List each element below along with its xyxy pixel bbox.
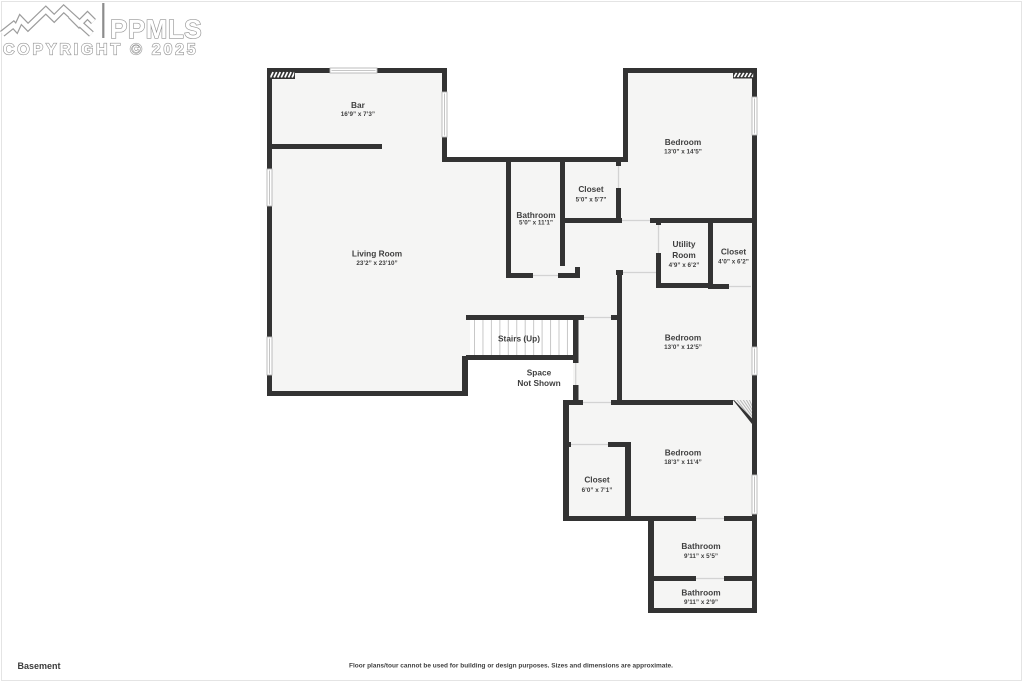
svg-text:6’0” x 7’1”: 6’0” x 7’1” [582, 487, 613, 494]
svg-text:Space: Space [527, 367, 552, 377]
svg-text:4’9” x 6’2”: 4’9” x 6’2” [669, 262, 700, 269]
svg-text:PPMLS: PPMLS [110, 14, 202, 44]
svg-text:Bathroom: Bathroom [681, 587, 720, 597]
svg-text:Closet: Closet [578, 184, 604, 194]
svg-text:Bedroom: Bedroom [665, 447, 701, 457]
svg-text:16’9” x 7’3”: 16’9” x 7’3” [341, 111, 375, 118]
svg-text:13’0” x 12’5”: 13’0” x 12’5” [664, 344, 702, 351]
svg-text:Closet: Closet [721, 246, 747, 256]
svg-text:Living Room: Living Room [352, 248, 402, 258]
svg-text:4’0” x 6’2”: 4’0” x 6’2” [718, 258, 749, 265]
svg-text:Bar: Bar [351, 100, 366, 110]
svg-text:Utility: Utility [672, 239, 695, 249]
svg-text:5’0” x 11’1”: 5’0” x 11’1” [519, 220, 553, 227]
svg-text:23’2” x 23’10”: 23’2” x 23’10” [356, 260, 397, 267]
svg-text:Not Shown: Not Shown [517, 378, 560, 388]
svg-text:9’11” x 5’5”: 9’11” x 5’5” [684, 553, 718, 560]
svg-text:Basement: Basement [18, 661, 61, 671]
svg-text:9’11” x 2’9”: 9’11” x 2’9” [684, 599, 718, 606]
svg-text:Bathroom: Bathroom [516, 210, 555, 220]
svg-text:5’0” x 5’7”: 5’0” x 5’7” [576, 196, 607, 203]
svg-text:Closet: Closet [584, 474, 610, 484]
svg-text:13’0” x 14’5”: 13’0” x 14’5” [664, 149, 702, 156]
svg-text:Floor plans/tour cannot be use: Floor plans/tour cannot be used for buil… [349, 663, 673, 670]
svg-text:Bedroom: Bedroom [665, 137, 701, 147]
svg-text:Bathroom: Bathroom [681, 541, 720, 551]
svg-text:COPYRIGHT © 2025: COPYRIGHT © 2025 [3, 42, 198, 59]
svg-text:Bedroom: Bedroom [665, 332, 701, 342]
svg-text:Room: Room [672, 250, 696, 260]
svg-text:Stairs (Up): Stairs (Up) [498, 333, 540, 343]
svg-text:18’3” x 11’4”: 18’3” x 11’4” [664, 459, 701, 466]
